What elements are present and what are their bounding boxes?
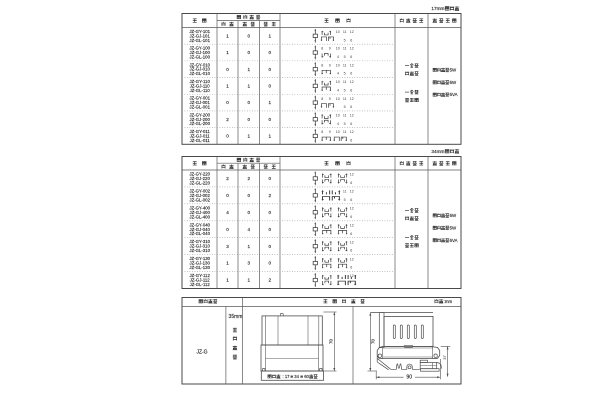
svg-text:6: 6 (350, 138, 352, 142)
svg-text:2: 2 (268, 193, 271, 198)
svg-text:10: 10 (336, 30, 340, 34)
svg-text:JZ-GL-011: JZ-GL-011 (190, 138, 211, 143)
svg-text:9: 9 (329, 130, 331, 134)
svg-text:2: 2 (268, 278, 271, 283)
svg-text:90: 90 (406, 375, 412, 381)
svg-text:0: 0 (268, 227, 271, 232)
svg-text:JZ-GL-101: JZ-GL-101 (189, 38, 210, 43)
svg-text:JZ-GL-112: JZ-GL-112 (190, 282, 211, 287)
svg-text:2: 2 (226, 176, 229, 181)
svg-text:9: 9 (329, 63, 331, 67)
svg-text:JZ-GL-040: JZ-GL-040 (189, 231, 210, 236)
svg-text:12: 12 (350, 240, 354, 244)
svg-text:12: 12 (350, 207, 354, 211)
svg-text:1: 1 (226, 50, 229, 55)
svg-text:JZ-GL-110: JZ-GL-110 (190, 88, 211, 93)
svg-text:11: 11 (343, 113, 347, 117)
svg-text:4: 4 (247, 227, 250, 232)
svg-text:10: 10 (336, 113, 340, 117)
svg-text:2: 2 (226, 117, 229, 122)
svg-text:9: 9 (329, 47, 331, 51)
svg-text:6: 6 (350, 55, 352, 59)
svg-text:1: 1 (247, 278, 250, 283)
svg-text:4: 4 (337, 122, 339, 126)
svg-text:0: 0 (268, 67, 271, 72)
svg-text:JZ-GL-310: JZ-GL-310 (189, 248, 210, 253)
svg-text:12: 12 (350, 173, 354, 177)
svg-text:12: 12 (350, 30, 354, 34)
svg-text:5W: 5W (450, 80, 457, 85)
svg-text:: 17: : 17 (283, 374, 291, 379)
svg-text:1: 1 (268, 134, 271, 139)
svg-text:0: 0 (268, 176, 271, 181)
svg-text:6: 6 (350, 105, 352, 109)
svg-text:5: 5 (344, 88, 346, 92)
svg-text:0: 0 (268, 244, 271, 249)
svg-text:11: 11 (343, 47, 347, 51)
svg-text:1: 1 (226, 261, 229, 266)
svg-text:5W: 5W (450, 213, 457, 218)
svg-text:5: 5 (344, 72, 346, 76)
svg-text:0: 0 (247, 117, 250, 122)
svg-text:1: 1 (247, 67, 250, 72)
svg-text:4: 4 (337, 72, 339, 76)
svg-text:35mm: 35mm (229, 314, 243, 320)
svg-text:17mm: 17mm (431, 6, 444, 11)
svg-text:12: 12 (350, 97, 354, 101)
svg-text:11: 11 (343, 30, 347, 34)
svg-text:8: 8 (321, 47, 323, 51)
svg-text:11: 11 (343, 63, 347, 67)
svg-text:6: 6 (350, 72, 352, 76)
svg-text:3: 3 (247, 261, 250, 266)
svg-text:12: 12 (350, 113, 354, 117)
svg-text:5VA: 5VA (450, 92, 458, 97)
svg-text:JZ-GL-200: JZ-GL-200 (189, 121, 210, 126)
svg-text:1: 1 (247, 84, 250, 89)
svg-text:0: 0 (247, 210, 250, 215)
svg-text:6: 6 (350, 122, 352, 126)
svg-text:0: 0 (247, 50, 250, 55)
svg-text:4: 4 (226, 210, 229, 215)
svg-text:0: 0 (268, 50, 271, 55)
svg-text:10: 10 (336, 47, 340, 51)
svg-text:12: 12 (350, 274, 354, 278)
svg-text:4: 4 (337, 55, 339, 59)
svg-text:10: 10 (336, 130, 340, 134)
svg-text:6: 6 (350, 232, 352, 236)
svg-text:0: 0 (268, 84, 271, 89)
svg-text:6: 6 (350, 88, 352, 92)
svg-text:JZ-GL-002: JZ-GL-002 (189, 197, 210, 202)
svg-text:5W: 5W (450, 68, 457, 73)
svg-text:6: 6 (350, 266, 352, 270)
svg-text:1: 1 (226, 84, 229, 89)
svg-text:10: 10 (336, 80, 340, 84)
svg-text:1: 1 (247, 244, 250, 249)
svg-text:0: 0 (268, 261, 271, 266)
svg-text:JZ-G: JZ-G (196, 349, 207, 355)
svg-text:4: 4 (337, 88, 339, 92)
svg-text:11: 11 (343, 97, 347, 101)
svg-text:0: 0 (226, 100, 229, 105)
svg-text:5: 5 (344, 55, 346, 59)
svg-text:0: 0 (268, 117, 271, 122)
svg-text:11: 11 (343, 80, 347, 84)
svg-text:2: 2 (247, 176, 250, 181)
svg-text:10: 10 (336, 97, 340, 101)
svg-text:0: 0 (247, 193, 250, 198)
svg-text:11: 11 (343, 190, 347, 194)
svg-text:8: 8 (321, 63, 323, 67)
svg-text:60: 60 (304, 374, 309, 379)
svg-text:6: 6 (350, 215, 352, 219)
svg-text:JZ-GL-220: JZ-GL-220 (189, 180, 210, 185)
svg-text:12: 12 (350, 223, 354, 227)
svg-text:0: 0 (247, 33, 250, 38)
svg-text:6: 6 (350, 198, 352, 202)
svg-text:1: 1 (247, 134, 250, 139)
svg-text:JZ-GL-001: JZ-GL-001 (189, 105, 210, 110)
svg-text:5: 5 (344, 198, 346, 202)
svg-text:1: 1 (268, 100, 271, 105)
svg-text:5W: 5W (450, 225, 457, 230)
svg-text:8: 8 (321, 130, 323, 134)
svg-text:12: 12 (350, 80, 354, 84)
svg-text:37: 37 (442, 355, 447, 360)
svg-text:1: 1 (226, 278, 229, 283)
svg-text::mm: :mm (444, 299, 453, 304)
svg-text:5: 5 (344, 38, 346, 42)
svg-text:11: 11 (343, 130, 347, 134)
svg-text:5: 5 (344, 105, 346, 109)
svg-text:5VA: 5VA (450, 238, 458, 243)
svg-text:12: 12 (350, 190, 354, 194)
svg-text:JZ-GL-100: JZ-GL-100 (189, 54, 210, 59)
svg-text:0: 0 (226, 227, 229, 232)
svg-text:34: 34 (294, 374, 299, 379)
svg-text:JZ-GL-400: JZ-GL-400 (189, 214, 210, 219)
svg-text:9: 9 (329, 97, 331, 101)
svg-text:6: 6 (350, 249, 352, 253)
svg-text:1: 1 (268, 33, 271, 38)
svg-text:0: 0 (247, 100, 250, 105)
svg-text:JZ-GL-010: JZ-GL-010 (189, 71, 210, 76)
svg-text:5: 5 (344, 122, 346, 126)
svg-text:12: 12 (350, 257, 354, 261)
svg-text:70: 70 (329, 339, 334, 344)
svg-text:0: 0 (268, 210, 271, 215)
svg-text:12: 12 (350, 130, 354, 134)
svg-text:8: 8 (321, 97, 323, 101)
svg-text:10: 10 (336, 63, 340, 67)
svg-text:12: 12 (350, 47, 354, 51)
svg-text:JZ-GL-130: JZ-GL-130 (189, 265, 210, 270)
svg-text:0: 0 (226, 193, 229, 198)
svg-text:70: 70 (370, 339, 375, 344)
svg-text:1: 1 (226, 33, 229, 38)
svg-text:12: 12 (350, 63, 354, 67)
svg-text:3: 3 (226, 244, 229, 249)
svg-text:34mm: 34mm (431, 149, 444, 154)
svg-text:0: 0 (226, 67, 229, 72)
svg-text:0: 0 (226, 134, 229, 139)
svg-text:6: 6 (350, 181, 352, 185)
svg-text:6: 6 (350, 38, 352, 42)
